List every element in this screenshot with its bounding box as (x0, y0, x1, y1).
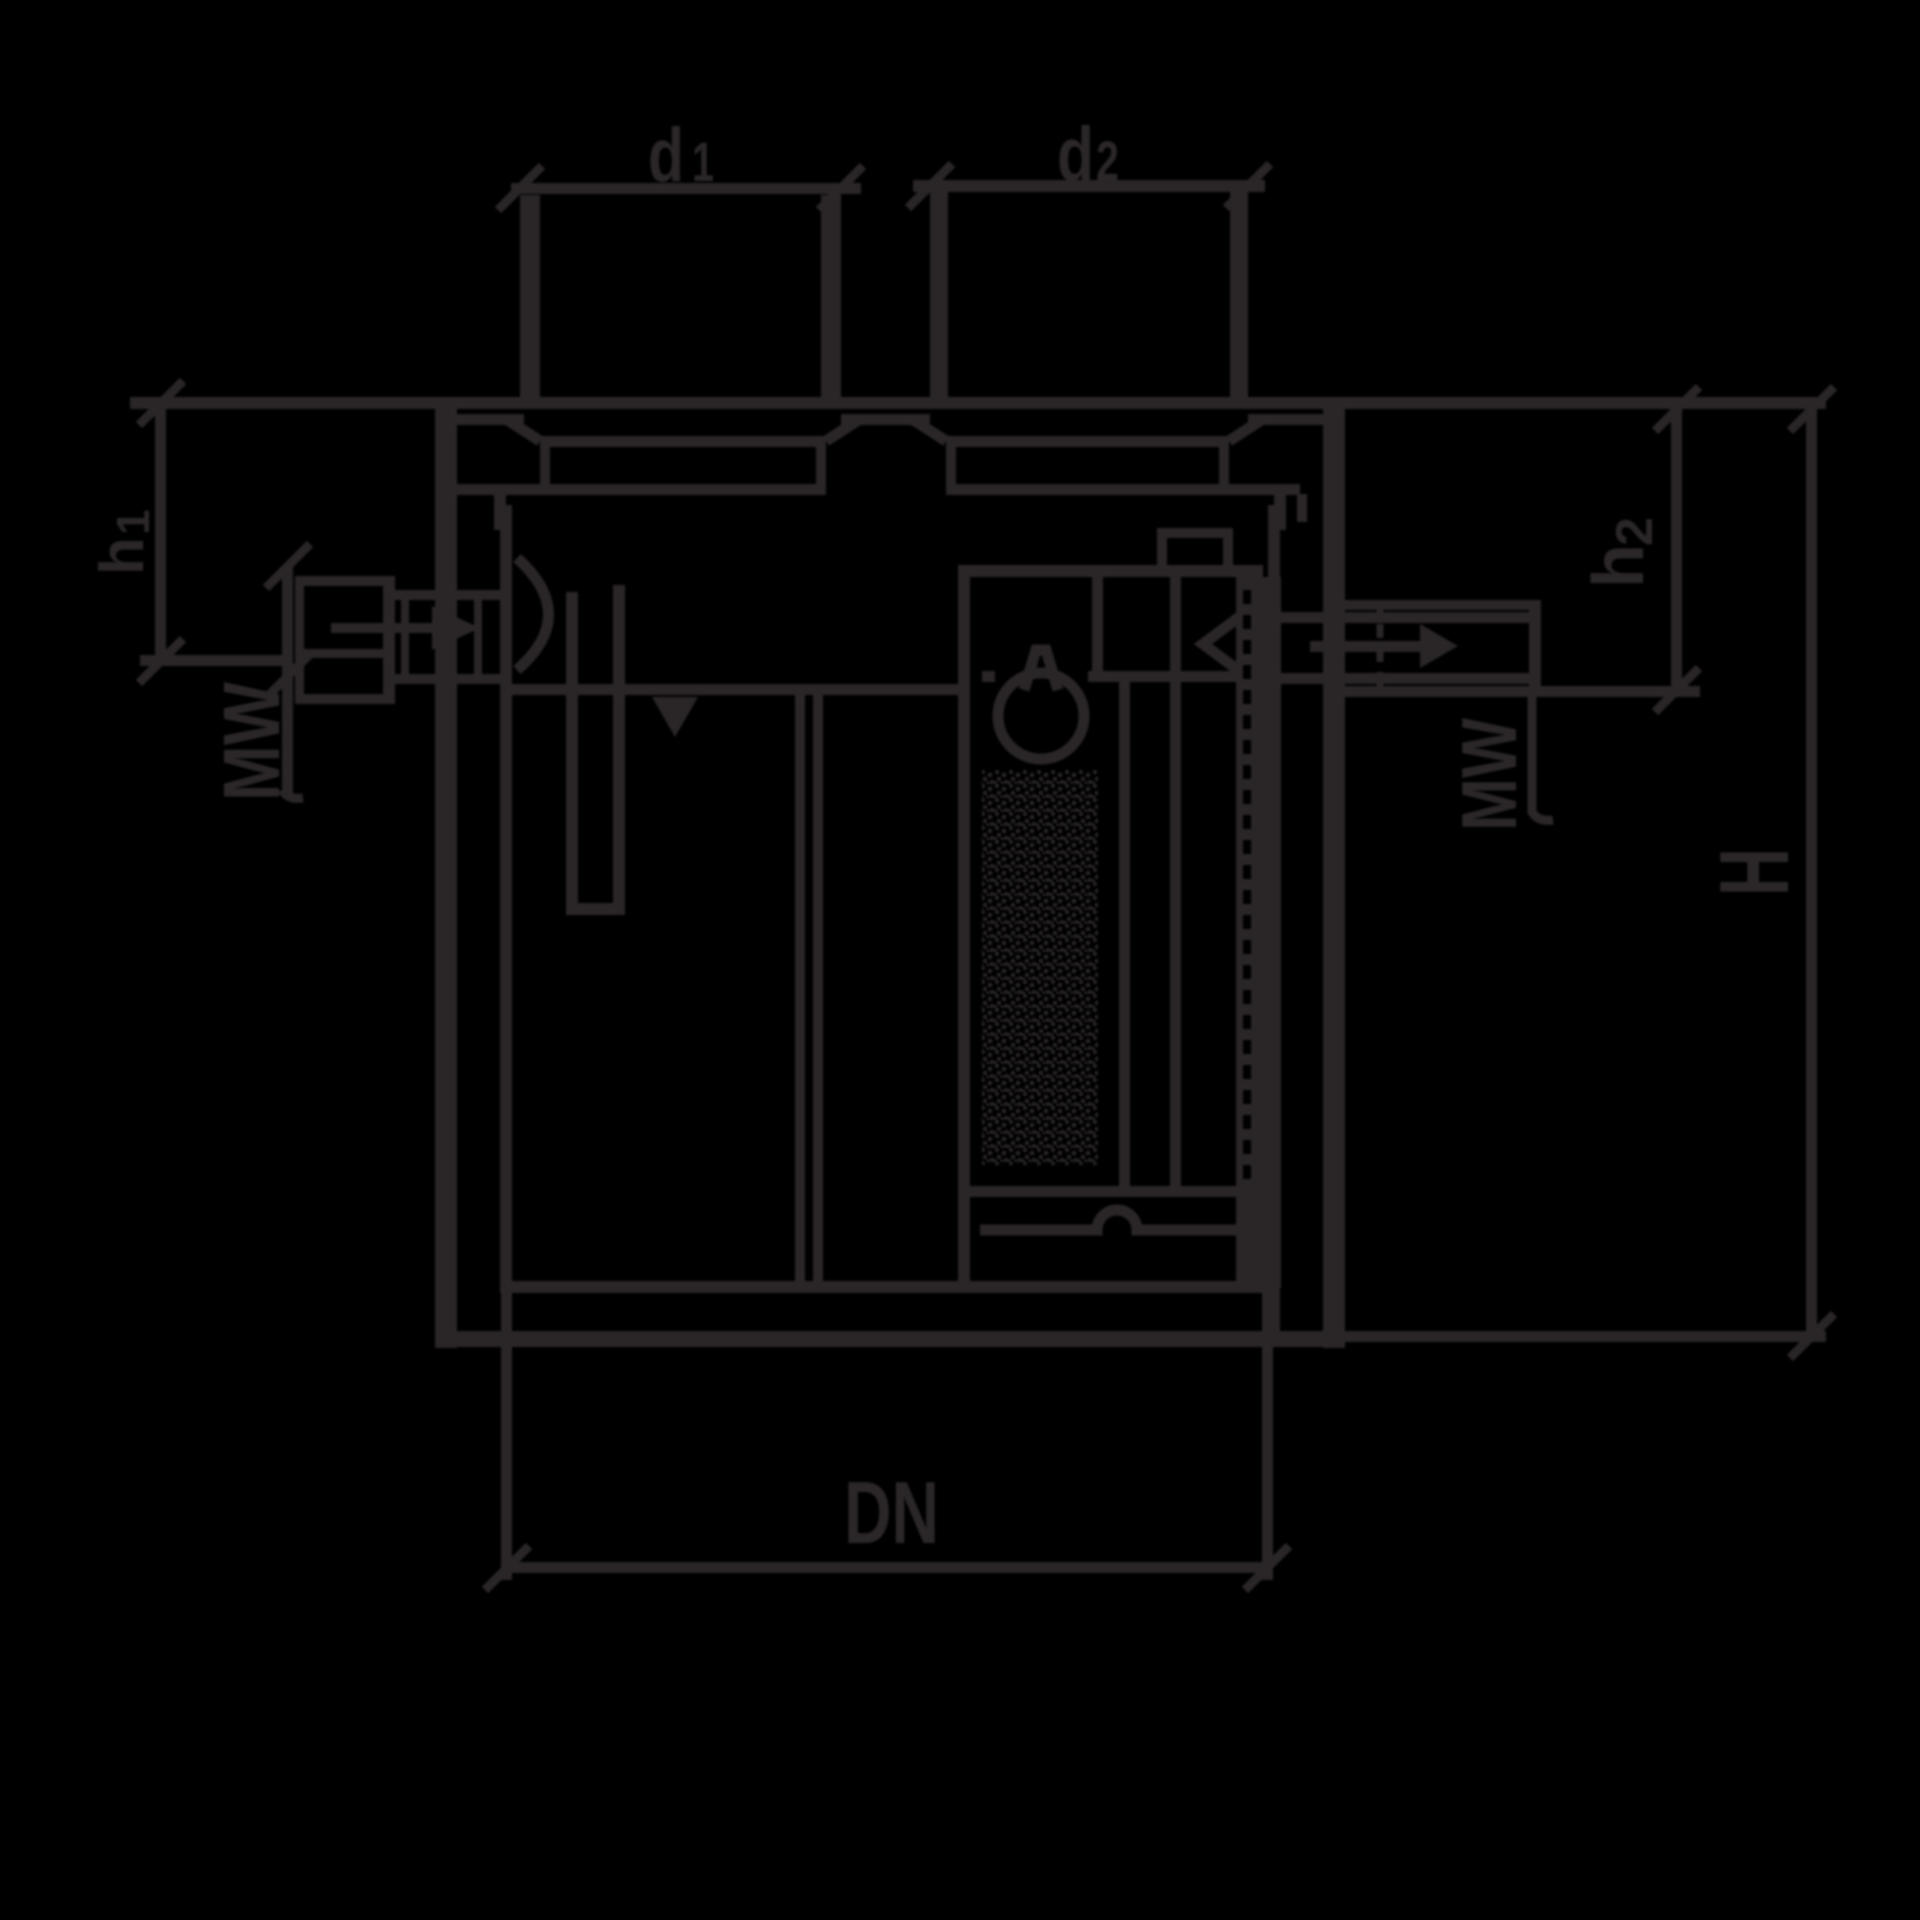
svg-text:d: d (1057, 112, 1094, 197)
svg-text:2: 2 (1096, 129, 1119, 192)
svg-text:MW: MW (1445, 718, 1533, 831)
svg-text:1: 1 (692, 130, 714, 193)
svg-text:d: d (648, 113, 684, 198)
svg-text:H: H (1699, 848, 1809, 896)
svg-text:2: 2 (1606, 517, 1664, 546)
svg-text:DN: DN (844, 1463, 939, 1562)
svg-text:h: h (1579, 544, 1659, 588)
svg-text:h: h (88, 537, 157, 575)
svg-text:1: 1 (107, 509, 159, 535)
svg-text:MW: MW (207, 682, 296, 801)
